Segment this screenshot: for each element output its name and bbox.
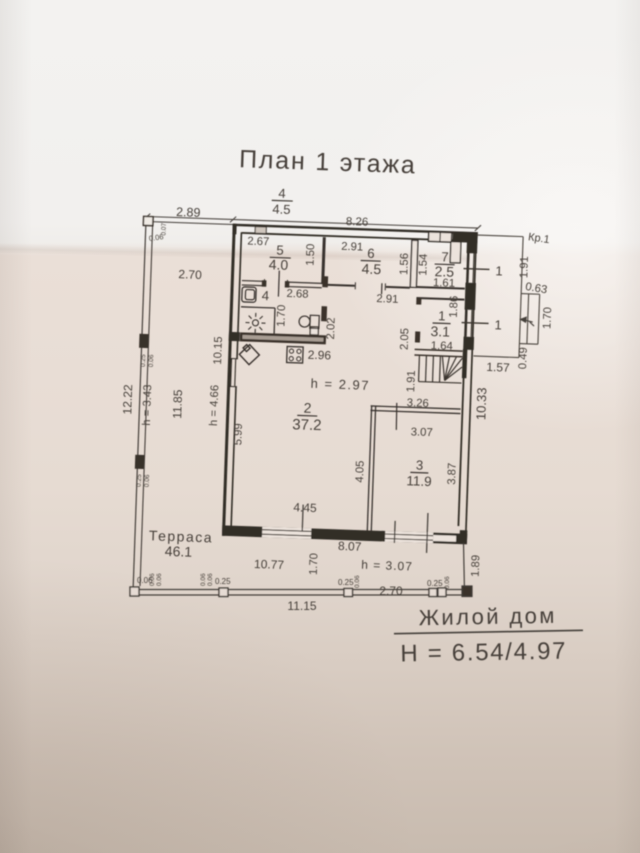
svg-text:8.26: 8.26 [346,216,369,229]
svg-text:10.15: 10.15 [212,336,225,365]
svg-text:4: 4 [278,186,286,201]
svg-text:0.06: 0.06 [200,573,207,586]
svg-text:1.61: 1.61 [433,277,455,290]
svg-text:Жилой дом: Жилой дом [418,603,557,630]
svg-text:4.5: 4.5 [361,261,381,278]
svg-text:0.06: 0.06 [207,573,214,586]
svg-text:0.06: 0.06 [144,474,151,487]
svg-text:2.70: 2.70 [178,267,202,282]
svg-text:4.45: 4.45 [293,500,317,515]
svg-text:7: 7 [441,249,449,264]
svg-text:Кр.1: Кр.1 [527,231,550,246]
svg-text:2.05: 2.05 [399,328,412,350]
svg-text:1.91: 1.91 [518,256,531,278]
svg-text:h = 3.43: h = 3.43 [141,384,154,426]
svg-text:0.06: 0.06 [148,354,155,367]
svg-text:0.06: 0.06 [354,575,361,588]
svg-text:3.07: 3.07 [411,426,433,439]
svg-text:1: 1 [494,317,502,332]
svg-text:37.2: 37.2 [292,416,322,434]
svg-text:3: 3 [416,458,424,473]
svg-text:5.99: 5.99 [232,423,245,445]
svg-text:План 1 этажа: План 1 этажа [239,145,417,179]
svg-text:1.70: 1.70 [308,553,321,575]
svg-text:0.06: 0.06 [149,573,156,586]
svg-text:1.70: 1.70 [275,305,288,327]
svg-text:2.70: 2.70 [379,584,403,598]
svg-text:2.91: 2.91 [341,241,363,254]
svg-text:6: 6 [367,246,375,261]
svg-text:11.85: 11.85 [170,389,185,419]
svg-text:1.57: 1.57 [486,360,510,375]
svg-text:11.9: 11.9 [406,473,432,489]
svg-text:2.02: 2.02 [325,317,338,339]
svg-text:0.06: 0.06 [156,573,163,586]
svg-text:46.1: 46.1 [165,543,193,560]
svg-text:0.07: 0.07 [160,222,167,235]
svg-text:1.91: 1.91 [405,370,418,392]
svg-text:1.89: 1.89 [470,555,483,577]
svg-text:11.15: 11.15 [287,599,316,613]
svg-text:1.56: 1.56 [398,253,411,275]
svg-text:0.25: 0.25 [215,577,231,586]
svg-text:1.70: 1.70 [541,307,554,329]
svg-text:1.54: 1.54 [417,253,430,275]
svg-text:4.05: 4.05 [354,460,367,482]
svg-text:2: 2 [303,400,312,416]
svg-text:2.89: 2.89 [176,205,201,220]
svg-text:h = 3.07: h = 3.07 [361,558,413,574]
svg-text:2.96: 2.96 [307,348,331,363]
svg-text:10.77: 10.77 [254,557,285,572]
svg-text:2.67: 2.67 [247,236,269,249]
svg-text:0.25: 0.25 [140,354,147,367]
svg-text:3.1: 3.1 [430,323,450,340]
svg-text:h = 2.97: h = 2.97 [310,376,370,393]
svg-text:Н = 6.54/4.97: Н = 6.54/4.97 [400,638,567,668]
svg-text:3.87: 3.87 [446,463,459,485]
svg-text:10.33: 10.33 [473,387,489,420]
svg-text:0.06: 0.06 [444,576,451,589]
svg-text:4.5: 4.5 [272,201,291,217]
svg-text:0.25: 0.25 [338,578,354,587]
svg-text:0.25: 0.25 [136,474,143,487]
svg-text:4.0: 4.0 [269,256,289,273]
svg-text:1: 1 [495,263,503,278]
svg-text:0.25: 0.25 [427,579,443,588]
svg-text:0.49: 0.49 [517,347,530,369]
svg-text:2.91: 2.91 [376,293,398,306]
svg-text:8.07: 8.07 [338,539,362,554]
svg-text:1.64: 1.64 [431,340,453,353]
svg-text:1: 1 [438,308,446,323]
svg-text:1.86: 1.86 [448,296,461,318]
svg-text:12.22: 12.22 [120,384,135,415]
svg-text:1.50: 1.50 [305,244,318,266]
svg-text:5: 5 [276,243,284,258]
svg-text:2.68: 2.68 [286,288,308,301]
svg-text:3.26: 3.26 [407,397,429,410]
svg-text:h = 4.66: h = 4.66 [208,385,221,427]
svg-text:4: 4 [261,288,269,303]
